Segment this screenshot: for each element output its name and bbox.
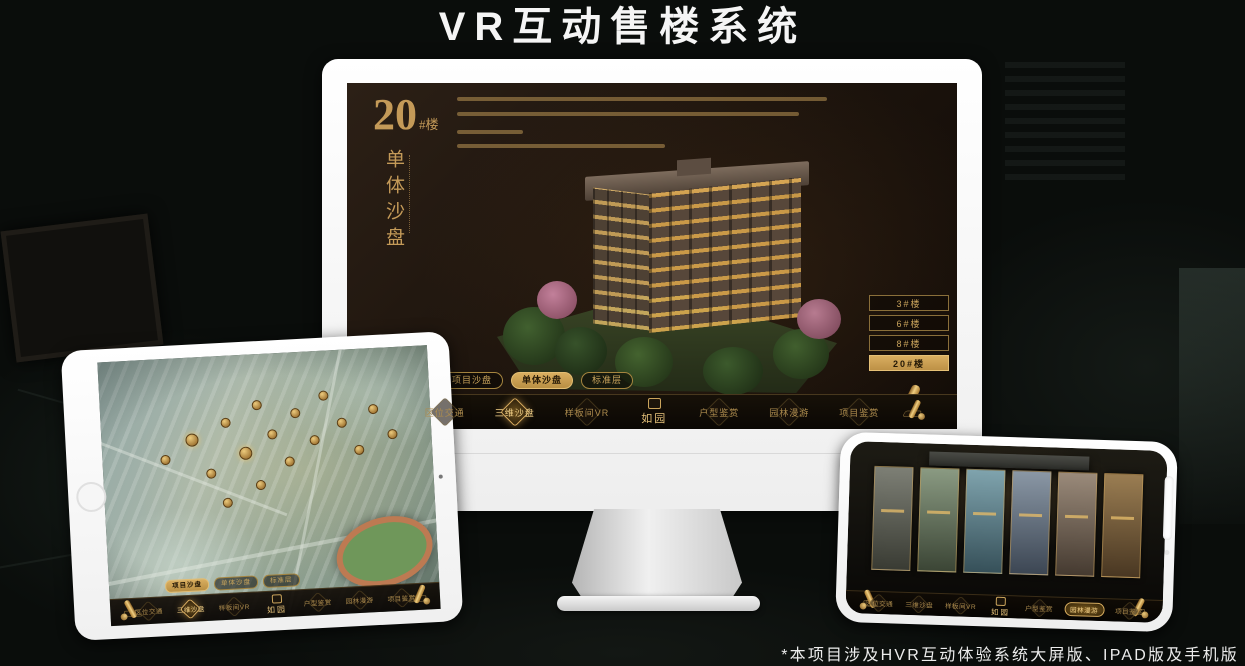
sandbox-subtabs: 项目沙盘 单体沙盘 标准层 (441, 372, 633, 389)
building-facade-right (649, 177, 801, 333)
subtab-standard-floor[interactable]: 标准层 (581, 372, 633, 389)
background-building-photo (1179, 268, 1245, 524)
phone-device: 区位交通 三维沙盘 样板间VR 如园 户型鉴赏 园林漫游 项目鉴赏 (835, 432, 1178, 632)
page-title: VR互动售楼系统 (0, 2, 1245, 52)
poster-canvas: VR互动售楼系统 20#楼 单体沙盘 (0, 0, 1245, 666)
seal-icon (271, 594, 281, 604)
gallery-panel[interactable] (1055, 472, 1097, 577)
nav-item-3d-sandbox[interactable]: 三维沙盘 (175, 601, 206, 617)
subtab-single-sandbox[interactable]: 单体沙盘 (214, 575, 259, 590)
phone-bottom-nav: 区位交通 三维沙盘 样板间VR 如园 户型鉴赏 园林漫游 项目鉴赏 (845, 590, 1163, 623)
brand-logo-text: 如园 (267, 603, 288, 615)
nav-item-unit-gallery[interactable]: 户型鉴赏 (302, 594, 333, 610)
nav-item-garden-roam[interactable]: 园林漫游 (767, 402, 811, 423)
nav-item-project-gallery[interactable]: 项目鉴赏 (1114, 603, 1144, 618)
blossom-tree (537, 281, 577, 319)
building-facade-left (593, 188, 649, 331)
building-roof-cap (677, 158, 711, 176)
camera-dot (439, 475, 443, 479)
scroll-icon[interactable] (904, 399, 926, 421)
tablet-screen: 项目沙盘 单体沙盘 标准层 区位交通 三维沙盘 样板间VR 如园 户型鉴赏 园 (97, 345, 440, 626)
side-button[interactable] (1163, 476, 1174, 540)
gallery-panel[interactable] (1101, 473, 1143, 578)
floor-button[interactable]: 8#楼 (869, 335, 949, 351)
scroll-knob (121, 613, 128, 620)
brand-logo-text: 如园 (641, 410, 667, 426)
nav-item-3d-sandbox[interactable]: 三维沙盘 (904, 597, 934, 612)
subtab-single-sandbox[interactable]: 单体沙盘 (511, 372, 573, 389)
subtab-project-sandbox[interactable]: 项目沙盘 (165, 578, 210, 593)
phone-screen: 区位交通 三维沙盘 样板间VR 如园 户型鉴赏 园林漫游 项目鉴赏 (845, 441, 1167, 623)
tablet-device: 项目沙盘 单体沙盘 标准层 区位交通 三维沙盘 样板间VR 如园 户型鉴赏 园 (61, 331, 464, 641)
background-building-photo (1005, 60, 1125, 180)
background-plaque (1, 213, 164, 362)
seal-icon (648, 398, 661, 409)
nav-item-showroom-vr[interactable]: 样板间VR (217, 599, 251, 615)
footnote-text: *本项目涉及HVR互动体验系统大屏版、IPAD版及手机版 (781, 641, 1239, 665)
brand-logo: 如园 (641, 398, 667, 426)
floor-button-active[interactable]: 20#楼 (869, 355, 949, 371)
nav-item-showroom-vr[interactable]: 样板间VR (563, 402, 612, 423)
section-title-vertical: 单体沙盘 (380, 149, 407, 253)
nav-item-project-gallery[interactable]: 项目鉴赏 (837, 402, 881, 423)
floor-button[interactable]: 6#楼 (869, 315, 949, 331)
brand-logo: 如园 (266, 593, 287, 615)
blossom-tree (797, 299, 841, 339)
intro-text-line (457, 112, 799, 116)
nav-item-unit-gallery[interactable]: 户型鉴赏 (697, 402, 741, 423)
intro-text-line (457, 144, 665, 148)
monitor-stand (572, 509, 742, 601)
nav-item-showroom-vr[interactable]: 样板间VR (944, 598, 977, 613)
floor-selector: 3#楼 6#楼 8#楼 20#楼 (869, 295, 949, 371)
gallery-panels (871, 466, 1143, 578)
intro-text-line (457, 97, 827, 101)
scroll-knob (918, 413, 925, 420)
nav-item-garden-roam[interactable]: 园林漫游 (1064, 602, 1104, 617)
nav-item-3d-sandbox[interactable]: 三维沙盘 (493, 402, 537, 423)
section-subtitle-rule (409, 155, 410, 233)
nav-item-location-traffic[interactable]: 区位交通 (864, 596, 894, 611)
building-3d-render (497, 161, 837, 397)
brand-logo-text: 如园 (991, 606, 1010, 618)
gallery-panel[interactable] (871, 466, 913, 571)
brand-logo: 如园 (991, 596, 1011, 618)
block-headline: 20#楼 (373, 93, 439, 137)
gallery-panel[interactable] (1009, 470, 1051, 575)
subtab-standard-floor[interactable]: 标准层 (263, 573, 300, 588)
camera-dot (1164, 550, 1169, 555)
gallery-panel[interactable] (917, 467, 959, 572)
gallery-panel[interactable] (963, 469, 1005, 574)
floor-button[interactable]: 3#楼 (869, 295, 949, 311)
tree (703, 347, 763, 395)
home-button[interactable] (76, 481, 108, 513)
nav-item-unit-gallery[interactable]: 户型鉴赏 (1024, 601, 1054, 616)
scroll-knob (423, 597, 430, 604)
nav-item-location-traffic[interactable]: 区位交通 (134, 603, 165, 619)
intro-text-line (457, 130, 523, 134)
block-number-suffix: #楼 (419, 117, 439, 132)
nav-item-location-traffic[interactable]: 区位交通 (423, 402, 467, 423)
nav-item-garden-roam[interactable]: 园林漫游 (344, 592, 375, 608)
nav-item-project-gallery[interactable]: 项目鉴赏 (386, 590, 417, 606)
block-number: 20 (373, 90, 417, 139)
seal-icon (996, 596, 1006, 605)
monitor-stand-base (557, 596, 760, 611)
tree (555, 327, 607, 375)
